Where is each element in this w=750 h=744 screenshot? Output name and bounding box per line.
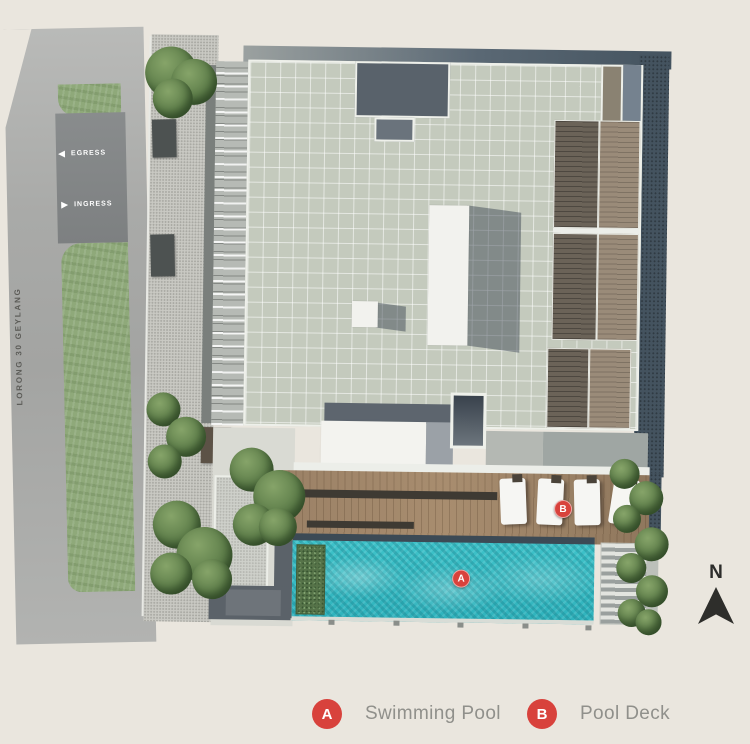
fence-post (585, 625, 591, 630)
roof-notch-step (374, 117, 414, 142)
roof-notch-topright (600, 65, 623, 123)
fence-post (328, 620, 334, 625)
north-arrow-icon (698, 587, 734, 624)
legend-label: Pool Deck (580, 703, 670, 725)
bin-centre-roof (226, 589, 281, 616)
service-core (427, 205, 469, 346)
fence-post (457, 623, 463, 628)
sun-lounger (499, 478, 527, 525)
fence-post (522, 623, 528, 628)
plant-box (450, 392, 487, 448)
clubhouse-block (321, 421, 427, 467)
marker-b: B (554, 500, 572, 518)
paved-inset (486, 431, 544, 470)
signage-panel (150, 234, 175, 276)
swimming-pool (292, 540, 595, 624)
site-plan-canvas: ◀ EGRESS ▶ INGRESS LORONG 30 GEYLANG (0, 0, 750, 744)
terrace-louver (546, 348, 589, 429)
roof-cube (352, 301, 378, 327)
legend-item-pool-deck: B Pool Deck (527, 699, 670, 729)
compass: N (698, 562, 734, 632)
pool-planter (296, 544, 326, 614)
terrace-louver (553, 120, 600, 229)
signage-panel (152, 119, 177, 157)
terrace-deck (596, 233, 638, 341)
site-group: A B (0, 0, 750, 744)
legend-marker-b: B (527, 699, 557, 729)
terrace-louver (551, 233, 597, 341)
terrace-deck (598, 120, 641, 229)
fence-post (393, 621, 399, 626)
cube-shadow (376, 303, 406, 332)
core-shadow (465, 205, 521, 352)
roof-notch-topright2 (623, 65, 642, 121)
sun-lounger (574, 479, 601, 526)
hedge (635, 609, 661, 635)
legend-item-swimming-pool: A Swimming Pool (312, 699, 501, 729)
compass-north-label: N (698, 562, 734, 584)
terrace-deck (588, 348, 631, 429)
legend-marker-a: A (312, 699, 342, 729)
deck-bench (307, 520, 414, 528)
roof-notch-top (355, 61, 451, 118)
legend-label: Swimming Pool (365, 703, 501, 725)
